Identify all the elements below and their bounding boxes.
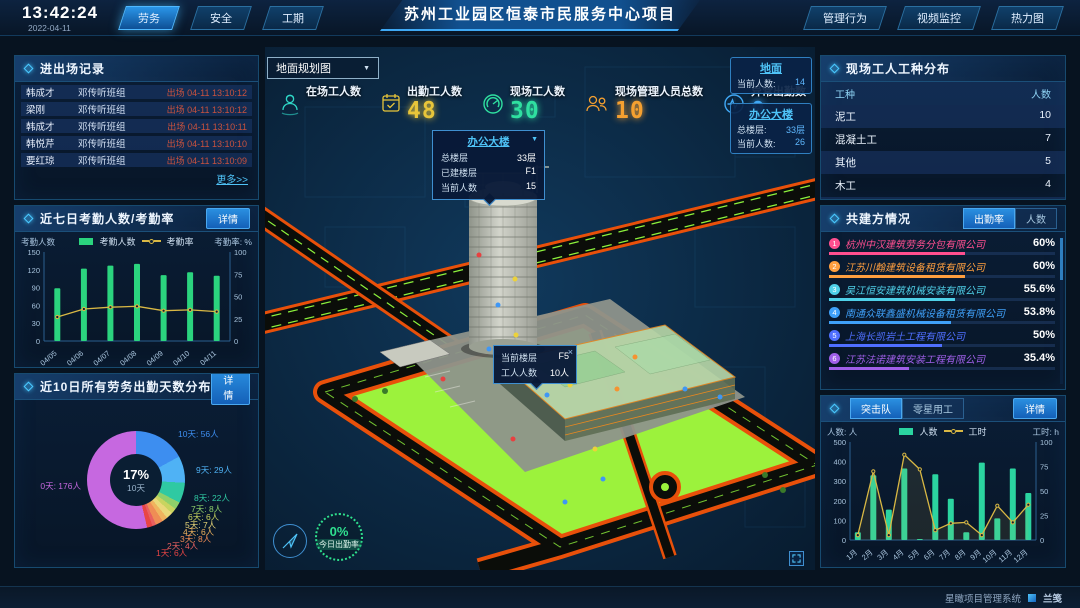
panel-distribution10-header: 近10日所有劳务出勤天数分布 详情 xyxy=(15,374,258,400)
stat-site-workers: 现场工人数30 xyxy=(481,83,565,123)
panel-distribution10: 近10日所有劳务出勤天数分布 详情 17% 10天 10天: 56人 9天: 2… xyxy=(14,373,259,568)
svg-text:04/09: 04/09 xyxy=(145,349,165,366)
close-icon[interactable]: × xyxy=(568,347,573,357)
panel-title: 近七日考勤人数/考勤率 xyxy=(40,210,174,227)
chart-svg: 0306090120150025507510004/0504/0604/0704… xyxy=(18,246,256,366)
current-time: 13:42:24 xyxy=(22,3,98,23)
panel-trade-distribution: 现场工人工种分布 工种 人数 泥工10混凝土工7其他5木工4塔司4 xyxy=(820,55,1066,200)
progress-bar xyxy=(829,367,909,370)
trade-type: 混凝土工 xyxy=(835,132,877,147)
progress-track xyxy=(829,252,1055,255)
site-map-area: 地面规划图 ▼ 在场工人数 出勤工人数48 现场工人数30 现场管理人员总数10… xyxy=(265,47,815,570)
progress-track xyxy=(829,344,1055,347)
svg-text:04/10: 04/10 xyxy=(171,349,191,366)
footer-bar: 星瞰项目管理系统 兰笺 xyxy=(0,586,1080,608)
diamond-icon xyxy=(830,214,840,224)
gauge-label: 今日出勤率 xyxy=(316,539,362,550)
svg-text:8月: 8月 xyxy=(953,548,968,562)
progress-bar xyxy=(829,298,955,301)
tab-heatmap[interactable]: 热力图 xyxy=(991,6,1064,30)
floor-card-title[interactable]: 办公大楼 xyxy=(737,106,805,122)
svg-text:2月: 2月 xyxy=(860,548,875,562)
progress-track xyxy=(829,321,1055,324)
tab-labor[interactable]: 劳务 xyxy=(118,6,180,30)
company-name: 吴江恒安建筑机械安装有限公司 xyxy=(845,282,1019,297)
brand-logo-icon xyxy=(1028,594,1036,602)
calendar-check-icon xyxy=(380,92,402,116)
company-name: 江苏法诺建筑安装工程有限公司 xyxy=(845,351,1019,366)
panel-partners-header: 共建方情况 出勤率 人数 xyxy=(821,206,1065,232)
diamond-icon xyxy=(830,64,840,74)
detail-button[interactable]: 详情 xyxy=(206,208,250,229)
today-attendance-gauge: 0% 今日出勤率 xyxy=(315,513,363,561)
gauge-icon xyxy=(481,92,505,116)
svg-text:150: 150 xyxy=(27,248,40,257)
trade-row: 塔司4 xyxy=(821,197,1065,200)
attendance-pct: 60% xyxy=(1033,237,1055,249)
bar-legend-swatch xyxy=(79,238,93,245)
exit-event: 出场 04-11 13:10:12 xyxy=(167,103,247,116)
diamond-icon xyxy=(830,404,840,414)
donut-label: 0天: 176人 xyxy=(21,480,81,492)
attendance-pct: 35.4% xyxy=(1024,352,1055,364)
partner-list: 1杭州中汉建筑劳务分包有限公司60% 2江苏川翰建筑设备租赁有限公司60% 3吴… xyxy=(821,236,1065,370)
trade-type: 木工 xyxy=(835,178,856,193)
trade-count: 10 xyxy=(1039,109,1051,124)
svg-text:25: 25 xyxy=(1040,512,1048,521)
svg-text:10月: 10月 xyxy=(981,548,999,565)
diamond-icon xyxy=(24,214,34,224)
right-column: 现场工人工种分布 工种 人数 泥工10混凝土工7其他5木工4塔司4 共建方情况 … xyxy=(820,55,1066,573)
crew-name: 邓传听班组 xyxy=(78,85,167,99)
tab-attendance-rate[interactable]: 出勤率 xyxy=(963,208,1015,229)
progress-track xyxy=(829,275,1055,278)
tooltip-row: 已建楼层F1 xyxy=(441,166,536,179)
rank-badge: 6 xyxy=(829,353,840,364)
worker-name: 韩成才 xyxy=(26,85,78,99)
svg-text:6月: 6月 xyxy=(922,548,937,562)
panel-entry-exit: 进出场记录 韩成才邓传听班组出场 04-11 13:10:12梁刚邓传听班组出场… xyxy=(14,55,259,200)
floor-tooltip[interactable]: × 当前楼层F5 工人人数10人 xyxy=(493,345,577,384)
exit-event: 出场 04-11 13:10:10 xyxy=(167,137,247,150)
trade-type: 泥工 xyxy=(835,109,856,124)
svg-text:50: 50 xyxy=(234,293,242,302)
worker-name: 梁刚 xyxy=(26,102,78,116)
building-tooltip-title[interactable]: 办公大楼 xyxy=(441,134,536,149)
trade-count: 4 xyxy=(1045,178,1051,193)
svg-text:60: 60 xyxy=(32,301,40,310)
page-title: 苏州工业园区恒泰市民服务中心项目 xyxy=(380,0,700,31)
panel-attendance7-header: 近七日考勤人数/考勤率 详情 xyxy=(15,206,258,232)
panel-entry-exit-header: 进出场记录 xyxy=(15,56,258,82)
trade-count: 5 xyxy=(1045,155,1051,170)
attendance-pct: 50% xyxy=(1033,329,1055,341)
more-link[interactable]: 更多>> xyxy=(15,171,248,186)
system-name: 星瞰项目管理系统 xyxy=(945,591,1021,605)
svg-text:500: 500 xyxy=(833,438,846,447)
donut-center-pct: 17% xyxy=(123,467,149,482)
svg-text:4月: 4月 xyxy=(891,548,906,562)
exit-event: 出场 04-11 13:10:11 xyxy=(167,120,247,133)
left-column: 进出场记录 韩成才邓传听班组出场 04-11 13:10:12梁刚邓传听班组出场… xyxy=(14,55,259,573)
clock: 13:42:24 2022-04-11 xyxy=(22,3,98,33)
attendance-pct: 60% xyxy=(1033,260,1055,272)
rank-badge: 3 xyxy=(829,284,840,295)
tooltip-row: 工人人数10人 xyxy=(501,366,569,379)
nav-right: 管理行为 视频监控 热力图 xyxy=(807,6,1060,30)
crew-name: 邓传听班组 xyxy=(78,102,167,116)
gauge-value: 0% xyxy=(330,524,349,539)
worker-name: 韩成才 xyxy=(26,119,78,133)
donut-label: 9天: 29人 xyxy=(196,464,232,476)
svg-text:04/11: 04/11 xyxy=(198,349,218,366)
progress-bar xyxy=(829,252,965,255)
current-date: 2022-04-11 xyxy=(28,23,98,33)
company-name: 杭州中汉建筑劳务分包有限公司 xyxy=(845,236,1028,251)
floor-card-title[interactable]: 地面 xyxy=(737,60,805,76)
svg-text:1月: 1月 xyxy=(844,548,859,562)
company-name: 上海长凯岩土工程有限公司 xyxy=(845,328,1028,343)
entry-exit-row[interactable]: 韩成才邓传听班组出场 04-11 13:10:11 xyxy=(21,119,252,133)
rank-badge: 5 xyxy=(829,330,840,341)
floor-card-office[interactable]: 办公大楼 总楼层:33层 当前人数:26 xyxy=(730,103,812,154)
trade-table-header: 工种 人数 xyxy=(821,82,1065,105)
attendance-pct: 55.6% xyxy=(1024,283,1055,295)
bar-legend-swatch xyxy=(899,428,913,435)
people-icon xyxy=(584,92,610,116)
company-name: 江苏川翰建筑设备租赁有限公司 xyxy=(845,259,1028,274)
diamond-icon xyxy=(24,64,34,74)
top-bar: 13:42:24 2022-04-11 劳务 安全 工期 苏州工业园区恒泰市民服… xyxy=(0,0,1080,36)
trade-row: 混凝土工7 xyxy=(821,128,1065,151)
svg-text:04/07: 04/07 xyxy=(92,349,112,366)
svg-text:300: 300 xyxy=(833,477,846,486)
svg-text:5月: 5月 xyxy=(906,548,921,562)
svg-text:75: 75 xyxy=(234,270,242,279)
progress-track xyxy=(829,367,1055,370)
progress-track xyxy=(829,298,1055,301)
stat-label: 现场工人数 xyxy=(510,83,565,99)
donut-chart: 17% 10天 10天: 56人 9天: 29人 8天: 22人 7天: 8人 … xyxy=(15,400,258,567)
rank-badge: 4 xyxy=(829,307,840,318)
diamond-icon xyxy=(24,382,34,392)
chevron-down-icon[interactable]: ▼ xyxy=(531,136,538,143)
map-layer-select[interactable]: 地面规划图 ▼ xyxy=(267,57,379,79)
tab-headcount[interactable]: 人数 xyxy=(1015,208,1057,229)
progress-bar xyxy=(829,275,965,278)
svg-text:100: 100 xyxy=(234,248,247,257)
worker-name: 韩悦芹 xyxy=(26,136,78,150)
partner-row[interactable]: 6江苏法诺建筑安装工程有限公司35.4% xyxy=(829,351,1055,370)
stat-value: 10 xyxy=(615,99,703,123)
line-legend-swatch xyxy=(944,429,963,434)
line-legend-swatch xyxy=(142,239,161,244)
svg-text:04/05: 04/05 xyxy=(38,349,58,366)
floor-card-row: 当前人数:14 xyxy=(737,77,805,90)
progress-bar xyxy=(829,344,942,347)
building-tooltip[interactable]: 办公大楼 ▼ 总楼层33层 已建楼层F1 当前人数15 xyxy=(432,130,545,200)
svg-text:0: 0 xyxy=(842,536,846,545)
stat-value: 48 xyxy=(407,99,462,123)
entry-exit-row[interactable]: 要红琼邓传听班组出场 04-11 13:10:09 xyxy=(21,153,252,167)
tab-assault-team[interactable]: 突击队 xyxy=(850,398,902,419)
svg-text:100: 100 xyxy=(1040,438,1053,447)
tab-video-monitor[interactable]: 视频监控 xyxy=(897,6,981,30)
partner-row[interactable]: 1杭州中汉建筑劳务分包有限公司60% xyxy=(829,236,1055,255)
chevron-down-icon: ▼ xyxy=(363,65,370,72)
svg-text:0: 0 xyxy=(1040,536,1044,545)
donut-label: 10天: 56人 xyxy=(178,428,219,440)
trade-type: 其他 xyxy=(835,155,856,170)
rank-badge: 2 xyxy=(829,261,840,272)
compass-icon xyxy=(280,531,300,551)
nav-left: 劳务 安全 工期 xyxy=(122,6,320,30)
svg-text:100: 100 xyxy=(833,516,846,525)
chart-svg: 010020030040050002550751001月2月3月4月5月6月7月… xyxy=(824,436,1062,565)
company-name: 南通众联鑫盛机械设备租赁有限公司 xyxy=(845,305,1019,320)
svg-text:0: 0 xyxy=(234,337,238,346)
entry-exit-row[interactable]: 韩成才邓传听班组出场 04-11 13:10:12 xyxy=(21,85,252,99)
svg-text:400: 400 xyxy=(833,458,846,467)
stat-managers-total: 现场管理人员总数10 xyxy=(584,83,703,123)
tab-casual-labor[interactable]: 零星用工 xyxy=(902,398,964,419)
panel-title: 共建方情况 xyxy=(846,210,911,227)
svg-text:75: 75 xyxy=(1040,463,1048,472)
panel-trade-header: 现场工人工种分布 xyxy=(821,56,1065,82)
panel-attendance7: 近七日考勤人数/考勤率 详情 考勤人数 考勤率 考勤人数 考勤率: % 0306… xyxy=(14,205,259,368)
fullscreen-icon[interactable] xyxy=(789,551,804,566)
rank-badge: 1 xyxy=(829,238,840,249)
stat-label: 出勤工人数 xyxy=(407,83,462,99)
svg-text:90: 90 xyxy=(32,284,40,293)
progress-bar xyxy=(829,321,951,324)
tooltip-row: 总楼层33层 xyxy=(441,151,536,164)
crew-name: 邓传听班组 xyxy=(78,119,167,133)
svg-text:25: 25 xyxy=(234,315,242,324)
donut-center-label: 10天 xyxy=(127,482,145,494)
entry-exit-row[interactable]: 梁刚邓传听班组出场 04-11 13:10:12 xyxy=(21,102,252,116)
trade-row: 木工4 xyxy=(821,174,1065,197)
trade-table-body: 泥工10混凝土工7其他5木工4塔司4 xyxy=(821,105,1065,200)
svg-text:50: 50 xyxy=(1040,487,1048,496)
donut-label: 1天: 6人 xyxy=(156,547,187,559)
scrollbar[interactable] xyxy=(1060,238,1063,384)
stat-label: 在场工人数 xyxy=(306,83,361,99)
floor-card-row: 当前人数:26 xyxy=(737,137,805,150)
svg-text:7月: 7月 xyxy=(937,548,952,562)
tab-safety[interactable]: 安全 xyxy=(190,6,252,30)
crew-name: 邓传听班组 xyxy=(78,153,167,167)
stat-value xyxy=(306,99,361,123)
donut-center: 17% 10天 xyxy=(110,454,162,506)
stat-attendance-workers: 出勤工人数48 xyxy=(380,83,462,123)
tab-management-behavior[interactable]: 管理行为 xyxy=(803,6,887,30)
stats-row: 在场工人数 出勤工人数48 现场工人数30 现场管理人员总数10 异常出勤数0 xyxy=(279,83,806,123)
col-count: 人数 xyxy=(1031,86,1051,101)
trade-count: 7 xyxy=(1045,132,1051,147)
col-type: 工种 xyxy=(835,86,855,101)
worker-name: 要红琼 xyxy=(26,153,78,167)
partner-row[interactable]: 4南通众联鑫盛机械设备租赁有限公司53.8% xyxy=(829,305,1055,324)
svg-text:11月: 11月 xyxy=(997,548,1015,565)
worker-icon xyxy=(279,92,301,116)
crew-name: 邓传听班组 xyxy=(78,136,167,150)
panel-assault-team: 突击队 零星用工 详情 人数 工时 人数: 人 工时: h 0100200300… xyxy=(820,395,1066,568)
svg-text:04/06: 04/06 xyxy=(65,349,85,366)
stat-onsite-workers: 在场工人数 xyxy=(279,83,361,123)
svg-text:0: 0 xyxy=(36,337,40,346)
map-layer-value: 地面规划图 xyxy=(276,60,331,76)
panel-assault-header: 突击队 零星用工 详情 xyxy=(821,396,1065,422)
partner-row[interactable]: 5上海长凯岩土工程有限公司50% xyxy=(829,328,1055,347)
svg-text:30: 30 xyxy=(32,319,40,328)
trade-row: 泥工10 xyxy=(821,105,1065,128)
svg-text:200: 200 xyxy=(833,497,846,506)
dashboard: { "header": { "time": "13:42:24", "date"… xyxy=(0,0,1080,608)
entry-exit-row[interactable]: 韩悦芹邓传听班组出场 04-11 13:10:10 xyxy=(21,136,252,150)
panel-partners: 共建方情况 出勤率 人数 1杭州中汉建筑劳务分包有限公司60% 2江苏川翰建筑设… xyxy=(820,205,1066,390)
svg-text:3月: 3月 xyxy=(875,548,890,562)
svg-text:12月: 12月 xyxy=(1012,548,1030,565)
tooltip-row: 当前人数15 xyxy=(441,181,536,194)
partner-row[interactable]: 2江苏川翰建筑设备租赁有限公司60% xyxy=(829,259,1055,278)
svg-text:9月: 9月 xyxy=(968,548,983,562)
floor-card-ground[interactable]: 地面 当前人数:14 xyxy=(730,57,812,94)
brand-logo-text: 兰笺 xyxy=(1043,591,1062,605)
stat-label: 现场管理人员总数 xyxy=(615,83,703,99)
panel-title: 近10日所有劳务出勤天数分布 xyxy=(40,378,211,395)
stat-value: 30 xyxy=(510,99,565,123)
tooltip-row: 当前楼层F5 xyxy=(501,351,569,364)
panel-title: 进出场记录 xyxy=(40,60,105,77)
exit-event: 出场 04-11 13:10:12 xyxy=(167,86,247,99)
exit-event: 出场 04-11 13:10:09 xyxy=(167,154,247,167)
trade-row: 其他5 xyxy=(821,151,1065,174)
compass-control[interactable] xyxy=(273,524,307,558)
svg-text:120: 120 xyxy=(27,266,40,275)
assault-chart: 010020030040050002550751001月2月3月4月5月6月7月… xyxy=(824,436,1062,568)
partner-row[interactable]: 3吴江恒安建筑机械安装有限公司55.6% xyxy=(829,282,1055,301)
attendance-pct: 53.8% xyxy=(1024,306,1055,318)
svg-text:04/08: 04/08 xyxy=(118,349,138,366)
panel-title: 现场工人工种分布 xyxy=(846,60,950,77)
entry-exit-list: 韩成才邓传听班组出场 04-11 13:10:12梁刚邓传听班组出场 04-11… xyxy=(15,85,258,167)
detail-button[interactable]: 详情 xyxy=(1013,398,1057,419)
floor-card-row: 总楼层:33层 xyxy=(737,123,805,136)
attendance-chart: 0306090120150025507510004/0504/0604/0704… xyxy=(18,246,256,368)
tab-schedule[interactable]: 工期 xyxy=(262,6,324,30)
